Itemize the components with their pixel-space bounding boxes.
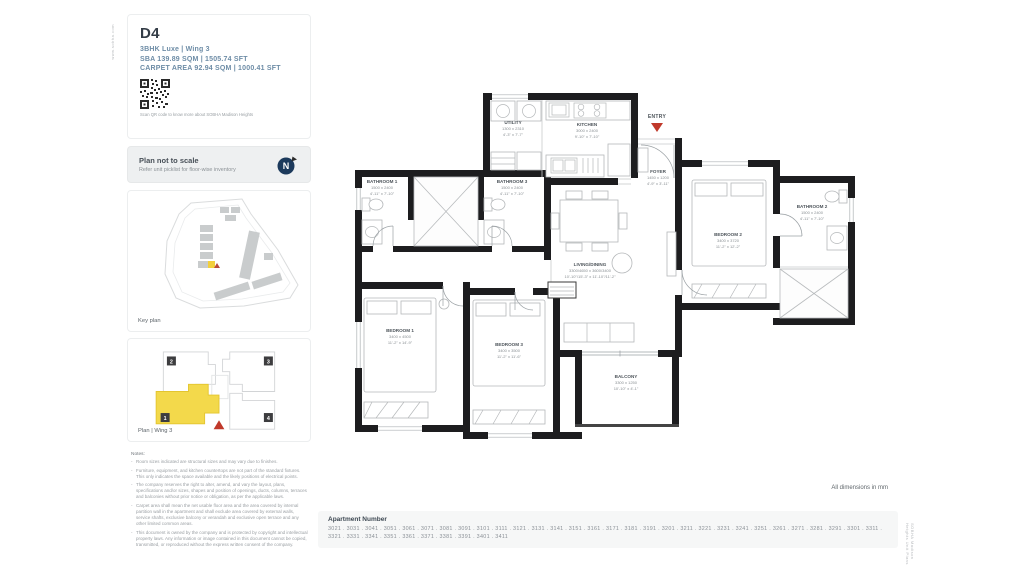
plan-note-subtitle: Refer unit picklist for floor-wise inven… — [139, 167, 236, 173]
svg-text:BATHROOM 1: BATHROOM 1 — [367, 179, 398, 184]
key-plan-map — [136, 195, 302, 317]
unit-summary-card: D4 3BHK Luxe | Wing 3 SBA 139.89 SQM | 1… — [127, 14, 311, 139]
sba-area: SBA 139.89 SQM | 1505.74 SFT — [140, 56, 298, 63]
unit-plan-page: www.sobha.com SOBHA Madison Heights Unit… — [0, 0, 1024, 576]
key-plan-highlight — [208, 261, 215, 268]
svg-text:1500 x 2400: 1500 x 2400 — [371, 185, 394, 190]
room-label-bathroom-1: BATHROOM 11500 x 24004'-11" x 7'-10" — [367, 179, 398, 196]
qr-caption: Scan QR code to know more about SOBHA Ma… — [140, 112, 298, 117]
svg-text:10'-10"/15'-3" x 11'-10"/11'-2: 10'-10"/15'-3" x 11'-10"/11'-2" — [564, 274, 616, 279]
room-label-living-dining: LIVING/DINING3300/4650 x 3600/340010'-10… — [564, 262, 616, 279]
notes-list: Room sizes indicated are structural size… — [131, 459, 309, 548]
qr-code-icon — [140, 79, 170, 109]
key-plan-card: Key plan — [127, 190, 311, 332]
svg-text:LIVING/DINING: LIVING/DINING — [574, 262, 607, 267]
svg-text:3000 x 2400: 3000 x 2400 — [576, 128, 599, 133]
svg-text:3400 x 3500: 3400 x 3500 — [498, 348, 521, 353]
note-item: Furniture, equipment, and kitchen counte… — [131, 468, 309, 480]
svg-text:1: 1 — [164, 416, 167, 422]
apartment-numbers-list: 3021 . 3031 . 3041 . 3051 . 3061 . 3071 … — [328, 525, 888, 542]
svg-text:4'-11" x 7'-10": 4'-11" x 7'-10" — [370, 191, 395, 196]
svg-text:9'-10" x 7'-10": 9'-10" x 7'-10" — [575, 134, 600, 139]
key-plan-label: Key plan — [138, 318, 161, 324]
svg-text:11'-2" x 11'-6": 11'-2" x 11'-6" — [497, 354, 522, 359]
room-label-utility: UTILITY1300 x 23104'-3" x 7'-7" — [502, 120, 525, 137]
svg-text:3: 3 — [267, 359, 270, 365]
svg-text:KITCHEN: KITCHEN — [577, 122, 598, 127]
svg-text:BATHROOM 2: BATHROOM 2 — [797, 204, 828, 209]
svg-text:BATHROOM 3: BATHROOM 3 — [497, 179, 528, 184]
apartment-number-title: Apartment Number — [328, 516, 888, 523]
wing-plan-card: 2 3 1 4 Plan | Wing 3 — [127, 338, 311, 442]
note-item: This document is owned by the company an… — [131, 530, 309, 548]
svg-text:BEDROOM 1: BEDROOM 1 — [386, 328, 414, 333]
svg-text:4'-11" x 7'-10": 4'-11" x 7'-10" — [800, 216, 825, 221]
wing-plan-diagram: 2 3 1 4 — [136, 343, 302, 431]
svg-text:BEDROOM 3: BEDROOM 3 — [495, 342, 523, 347]
note-item: Room sizes indicated are structural size… — [131, 459, 309, 465]
svg-text:FOYER: FOYER — [650, 169, 667, 174]
svg-text:1300 x 2310: 1300 x 2310 — [502, 126, 525, 131]
svg-text:BEDROOM 2: BEDROOM 2 — [714, 232, 742, 237]
svg-text:10'-10" x 4'-1": 10'-10" x 4'-1" — [614, 386, 639, 391]
svg-text:4'-3" x 7'-7": 4'-3" x 7'-7" — [503, 132, 524, 137]
notes-section: Notes: Room sizes indicated are structur… — [127, 450, 313, 552]
dimensions-note: All dimensions in mm — [788, 485, 888, 491]
plan-not-to-scale-title: Plan not to scale — [139, 156, 236, 165]
svg-text:2: 2 — [170, 359, 173, 365]
unit-code: D4 — [140, 25, 298, 42]
plan-scale-note-card: Plan not to scale Refer unit picklist fo… — [127, 146, 311, 183]
unit-type: 3BHK Luxe | Wing 3 — [140, 46, 298, 53]
left-edge-vertical-text: www.sobha.com — [110, 24, 115, 60]
room-label-foyer: FOYER1450 x 12004'-9" x 3'-11" — [647, 169, 670, 186]
room-label-bedroom-3: BEDROOM 33400 x 350011'-2" x 11'-6" — [495, 342, 523, 359]
qr-code — [140, 79, 298, 109]
room-label-bathroom-3: BATHROOM 31500 x 24004'-11" x 7'-10" — [497, 179, 528, 196]
floor-plan-drawing: ENTRY UTILITY1300 x 23104'-3" x 7'-7" KI… — [320, 60, 905, 512]
svg-text:4'-11" x 7'-10": 4'-11" x 7'-10" — [500, 191, 525, 196]
entry-marker: ENTRY — [648, 114, 667, 132]
entry-arrow-icon — [651, 123, 663, 132]
note-item: Carpet area shall mean the net usable fl… — [131, 503, 309, 527]
room-label-bedroom-1: BEDROOM 13400 x 450011'-2" x 14'-9" — [386, 328, 414, 345]
room-label-bathroom-2: BATHROOM 21500 x 24004'-11" x 7'-10" — [797, 204, 828, 221]
room-label-kitchen: KITCHEN3000 x 24009'-10" x 7'-10" — [575, 122, 600, 139]
svg-text:1500 x 2400: 1500 x 2400 — [801, 210, 824, 215]
svg-text:1500 x 2400: 1500 x 2400 — [501, 185, 524, 190]
svg-text:N: N — [283, 161, 290, 171]
right-edge-vertical-text: SOBHA Madison Heights Unit Plans — [905, 523, 915, 576]
svg-text:3300/4650 x 3600/3400: 3300/4650 x 3600/3400 — [569, 268, 612, 273]
svg-text:3300 x 1250: 3300 x 1250 — [615, 380, 638, 385]
svg-text:BALCONY: BALCONY — [615, 374, 638, 379]
wing-plan-label: Plan | Wing 3 — [138, 428, 172, 434]
north-compass-icon: N — [275, 154, 299, 176]
room-label-bedroom-2: BEDROOM 23400 x 372011'-2" x 12'-2" — [714, 232, 742, 249]
svg-text:3400 x 3720: 3400 x 3720 — [717, 238, 740, 243]
svg-text:3400 x 4500: 3400 x 4500 — [389, 334, 412, 339]
svg-text:UTILITY: UTILITY — [504, 120, 521, 125]
room-label-balcony: BALCONY3300 x 125010'-10" x 4'-1" — [614, 374, 639, 391]
svg-text:11'-2" x 12'-2": 11'-2" x 12'-2" — [716, 244, 741, 249]
wing-plan-marker-triangle — [214, 420, 225, 429]
notes-title: Notes: — [131, 452, 309, 457]
svg-text:1450 x 1200: 1450 x 1200 — [647, 175, 670, 180]
apartment-number-section: Apartment Number 3021 . 3031 . 3041 . 30… — [318, 511, 898, 548]
note-item: The company reserves the right to alter,… — [131, 482, 309, 500]
svg-text:ENTRY: ENTRY — [648, 114, 667, 120]
svg-text:4'-9" x 3'-11": 4'-9" x 3'-11" — [647, 181, 670, 186]
carpet-area: CARPET AREA 92.94 SQM | 1000.41 SFT — [140, 65, 298, 72]
svg-text:11'-2" x 14'-9": 11'-2" x 14'-9" — [388, 340, 413, 345]
svg-text:4: 4 — [267, 416, 270, 422]
